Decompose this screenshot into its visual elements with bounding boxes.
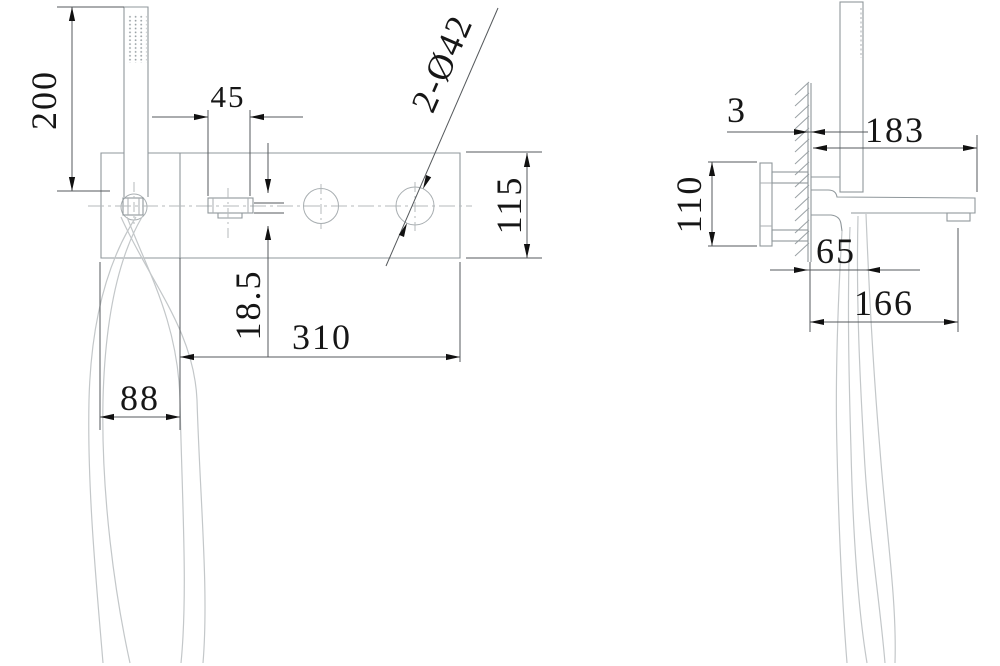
holes-callout-label: 2-Ø42 (403, 8, 480, 117)
dim-label-115: 115 (489, 176, 529, 235)
dimension-110: 110 (669, 162, 757, 246)
dim-label-200: 200 (24, 70, 64, 130)
handshower-wand-front (124, 7, 148, 197)
spout-aerator (947, 213, 970, 221)
dimension-45: 45 (152, 79, 303, 196)
handshower-holder-front (121, 182, 147, 224)
dim-label-166: 166 (854, 283, 914, 323)
dimension-310: 310 (180, 258, 460, 362)
dimension-65: 65 (770, 231, 920, 273)
dimension-88: 88 (100, 262, 180, 430)
dim-label-45: 45 (211, 79, 246, 114)
dim-label-18-5: 18.5 (228, 270, 268, 341)
side-view: 3 183 110 65 (669, 2, 977, 663)
spray-face-dots (128, 14, 147, 63)
dimension-115: 115 (466, 152, 542, 258)
knob-circle-right (396, 182, 434, 231)
dim-label-65: 65 (816, 231, 856, 271)
bath-mixer-dimension-drawing: 200 45 2-Ø42 115 (0, 0, 1000, 666)
dimension-200: 200 (24, 7, 124, 191)
dim-label-3: 3 (727, 90, 747, 130)
dim-label-310: 310 (292, 317, 352, 357)
dimension-3: 3 (727, 90, 868, 135)
technical-drawing-canvas: 200 45 2-Ø42 115 (0, 0, 1000, 666)
dimension-183: 183 (813, 110, 977, 192)
tub-spout-front (208, 188, 253, 240)
holes-callout-2xD42: 2-Ø42 (386, 8, 498, 266)
tub-spout-side (811, 177, 975, 231)
dim-label-183: 183 (865, 110, 925, 150)
shower-hose-front (89, 217, 205, 663)
handshower-wand-side (840, 2, 863, 192)
dim-label-110: 110 (669, 175, 709, 234)
dimension-18-5: 18.5 (228, 143, 284, 357)
front-view: 200 45 2-Ø42 115 (24, 7, 542, 663)
shower-hose-side (836, 214, 895, 663)
dim-label-88: 88 (120, 378, 160, 418)
